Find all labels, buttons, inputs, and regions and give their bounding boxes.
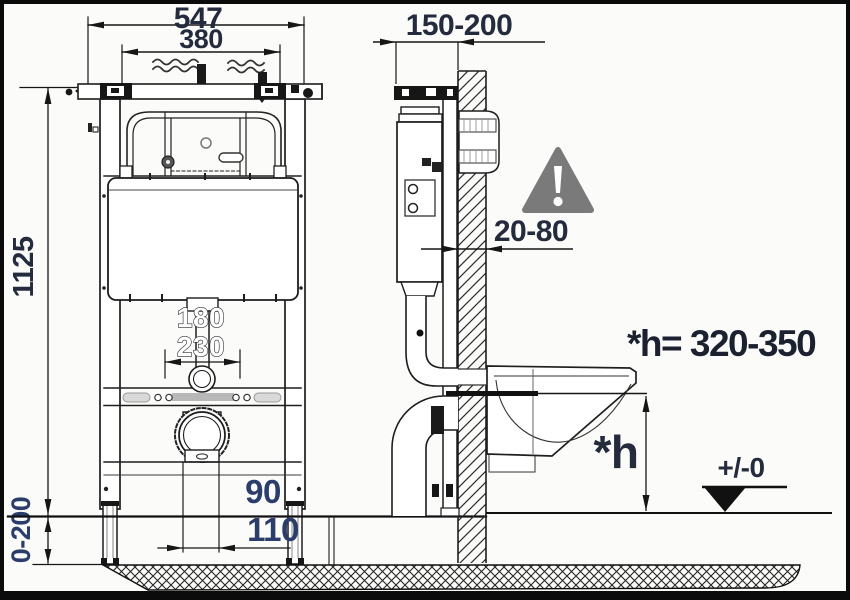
panel-bolt-center [166,160,170,164]
waste-outlet [175,408,229,462]
frame-right-rail [285,99,305,509]
dim-inner-width-label: 380 [179,24,223,54]
wall-bracket [459,111,499,173]
frame-top-rail [66,83,322,99]
flush-bend [189,366,215,392]
drawing-border-bottom [0,591,850,600]
dim-foot-adjustment-label: 0-200 [6,497,36,564]
dim-install-depth-label: 150-200 [406,9,513,42]
installation-diagram-svg: 547 380 [0,0,850,600]
panel-slot [219,153,243,162]
floor [103,565,800,590]
dim-bowl-height-symbol: *h [594,426,639,478]
cistern-tank [108,174,298,311]
dim-flush-offset-b-label: 230 [177,331,225,362]
dim-flush-offset-a-label: 180 [177,302,225,333]
floor-hatch [103,565,800,590]
cistern-side [397,107,442,296]
technical-drawing: 547 380 [0,0,850,600]
left-foot [101,501,119,565]
frame-left-rail [100,99,120,509]
dim-outlet-offset-a-label: 90 [245,473,281,510]
dim-finish-thickness-label: 20-80 [494,215,568,248]
fixing-rod [446,391,538,396]
top-wall-bracket [394,86,458,100]
bowl-height-note: *h= 320-350 [627,323,816,364]
frame-clip [88,123,92,132]
dim-frame-height-label: 1125 [8,236,40,297]
floor-level-label: +/-0 [717,452,764,483]
